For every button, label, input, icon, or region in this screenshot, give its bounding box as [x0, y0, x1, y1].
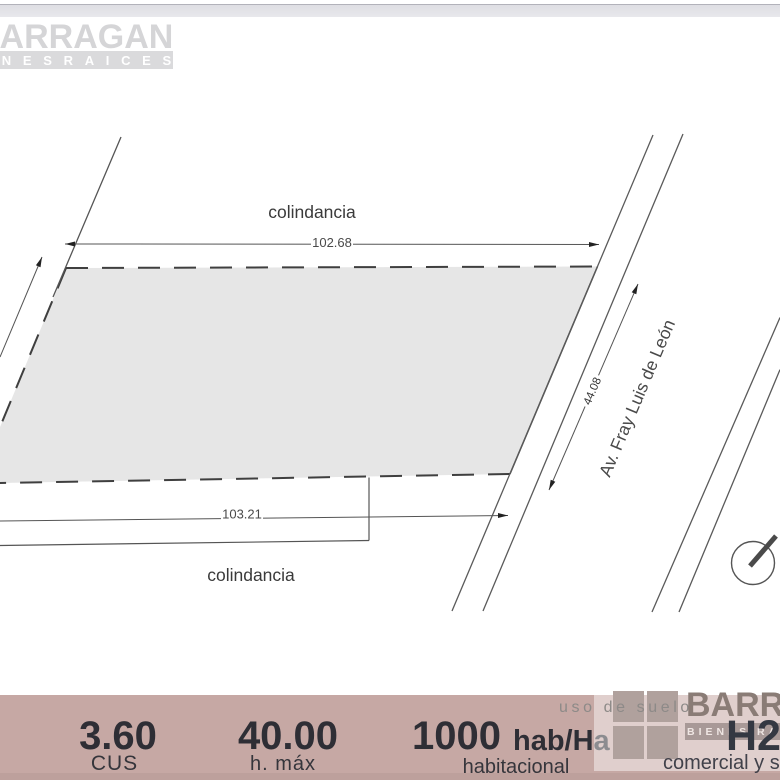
svg-text:colindancia: colindancia — [207, 565, 295, 585]
svg-text:103.21: 103.21 — [222, 507, 262, 522]
svg-text:colindancia: colindancia — [268, 202, 356, 222]
svg-text:102.68: 102.68 — [312, 235, 352, 250]
svg-text:Av. Fray Luis de León: Av. Fray Luis de León — [595, 316, 679, 479]
